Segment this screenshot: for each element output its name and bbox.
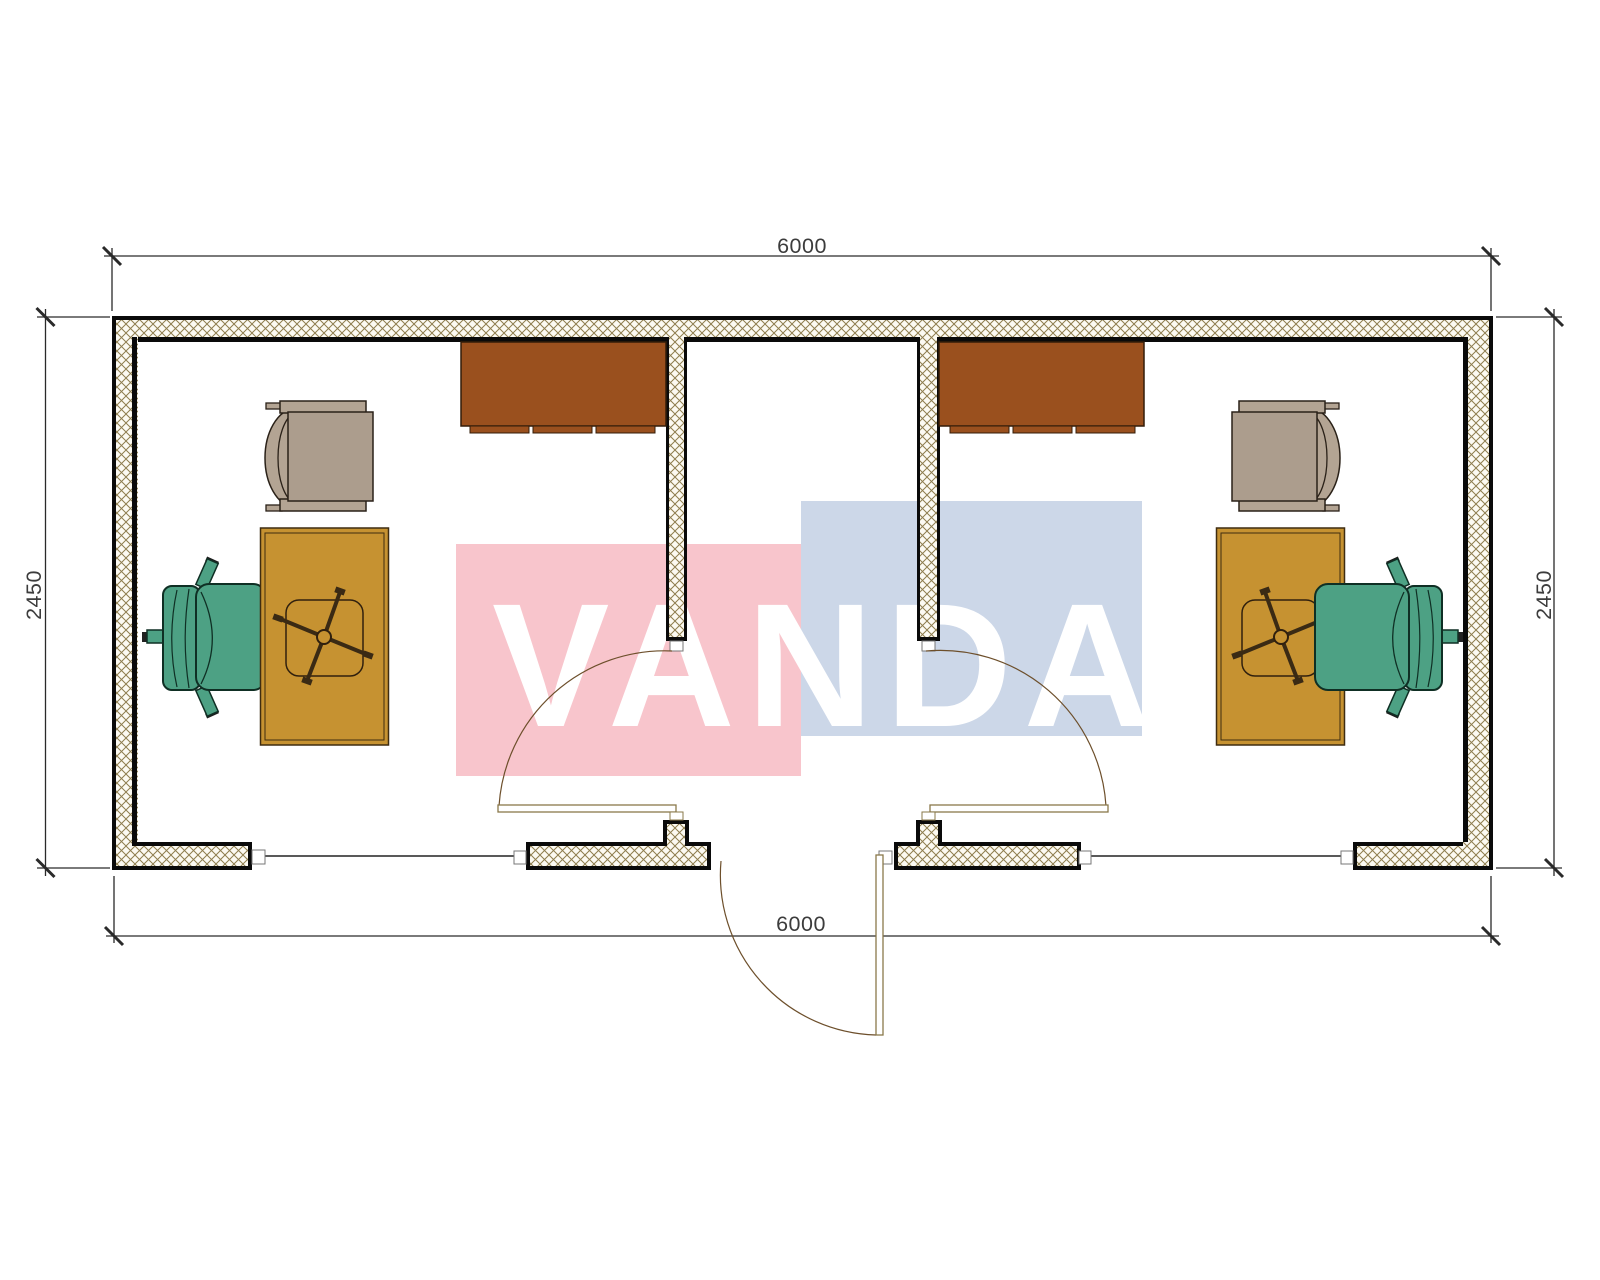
svg-text:6000: 6000 (777, 234, 827, 258)
svg-text:6000: 6000 (776, 912, 826, 936)
svg-text:2450: 2450 (1532, 570, 1556, 620)
svg-text:VANDA: VANDA (492, 568, 1162, 764)
svg-text:2450: 2450 (22, 570, 46, 620)
